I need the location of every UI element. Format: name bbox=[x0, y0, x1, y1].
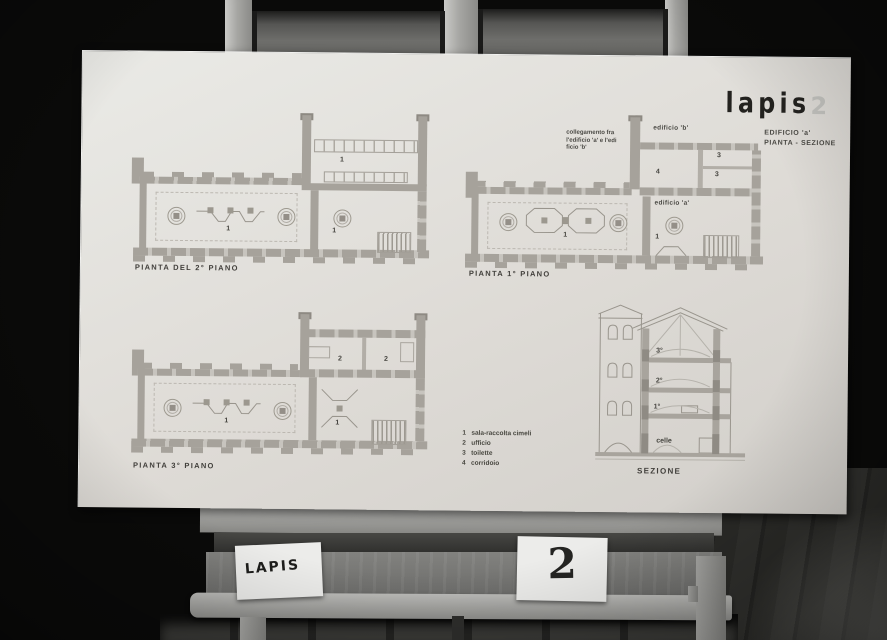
room-number-label: 2 bbox=[338, 355, 342, 362]
wall bbox=[308, 377, 317, 440]
room-number-label: 1 bbox=[563, 232, 567, 239]
wall bbox=[471, 187, 479, 262]
partition bbox=[703, 166, 758, 170]
room-number-label: 3 bbox=[715, 171, 719, 178]
wall bbox=[300, 369, 425, 378]
section-floor-label: 1° bbox=[654, 404, 661, 411]
desk-symbol bbox=[400, 342, 414, 362]
room-number-label: 1 bbox=[224, 417, 228, 424]
legend-item-number: 3 bbox=[462, 449, 471, 459]
sheet-number: 2 bbox=[810, 92, 827, 120]
wall bbox=[751, 150, 761, 256]
wall bbox=[137, 369, 145, 447]
presentation-board: lapis 2 EDIFICIO 'a' PIANTA - SEZIONE 1 bbox=[78, 50, 851, 514]
wall bbox=[472, 187, 632, 196]
wall bbox=[418, 116, 428, 186]
wall bbox=[310, 190, 319, 251]
staircase-symbol bbox=[703, 235, 739, 258]
legend-item: 1sala-raccolta cimeli bbox=[462, 429, 531, 440]
sheet-subtitle: EDIFICIO 'a' PIANTA - SEZIONE bbox=[764, 129, 836, 149]
room-number-label: 4 bbox=[656, 169, 660, 176]
legend: 1sala-raccolta cimeli 2ufficio 3toilette… bbox=[462, 429, 531, 470]
section-basement-label: celle bbox=[656, 438, 672, 445]
staircase-symbol bbox=[377, 232, 411, 253]
logo: lapis bbox=[725, 86, 810, 120]
plan-title-first-floor: PIANTA 1° PIANO bbox=[469, 269, 551, 279]
wall-collegamento bbox=[630, 117, 641, 189]
room-number-label: 1 bbox=[226, 225, 230, 232]
easel-leg-right bbox=[696, 556, 726, 640]
legend-item-label: toilette bbox=[471, 450, 492, 457]
section-drawing: 3° 2° 1° celle bbox=[595, 301, 747, 466]
floor-plan-1st-floor: collegamento fra l'edificio 'a' e l'edi … bbox=[459, 114, 760, 271]
legend-item-number: 1 bbox=[462, 429, 471, 439]
wall bbox=[302, 115, 312, 185]
legend-item-number: 4 bbox=[462, 459, 471, 469]
room-number-label: 2 bbox=[384, 356, 388, 363]
column-symbol bbox=[167, 207, 185, 225]
room-number-label: 1 bbox=[335, 419, 339, 426]
wall bbox=[140, 177, 304, 186]
photo-scene: lapis 2 EDIFICIO 'a' PIANTA - SEZIONE 1 bbox=[0, 0, 887, 640]
wall bbox=[640, 187, 758, 196]
partition bbox=[362, 338, 366, 371]
legend-item: 2ufficio bbox=[462, 439, 531, 450]
room-number-label: 1 bbox=[332, 227, 336, 234]
legend-item-label: corridoio bbox=[471, 460, 499, 467]
wall bbox=[417, 191, 427, 252]
card-lapis: LAPIS bbox=[235, 542, 323, 600]
easel-center-pole bbox=[452, 616, 464, 640]
wall bbox=[139, 177, 147, 256]
easel-leg-left bbox=[240, 617, 266, 640]
column-symbol bbox=[333, 209, 351, 227]
staircase-symbol bbox=[371, 420, 406, 445]
sheet-subtitle-line1: EDIFICIO 'a' bbox=[764, 129, 836, 139]
wall bbox=[416, 315, 426, 378]
card-number-label: 2 bbox=[517, 538, 608, 588]
legend-item-label: sala-raccolta cimeli bbox=[471, 430, 531, 438]
sheet-subtitle-line2: PIANTA - SEZIONE bbox=[764, 138, 836, 148]
column-symbol bbox=[499, 213, 517, 231]
section-title: SEZIONE bbox=[637, 466, 681, 475]
plan-title-second-floor: PIANTA DEL 2° PIANO bbox=[135, 263, 239, 273]
legend-item-number: 2 bbox=[462, 439, 471, 449]
wall bbox=[642, 196, 651, 255]
label-edificio-a: edificio 'a' bbox=[655, 200, 690, 207]
column-symbol bbox=[609, 214, 627, 232]
legend-item: 3toilette bbox=[462, 449, 531, 460]
floor-plan-3rd-floor: 2 2 1 1 bbox=[123, 307, 430, 460]
section-floor-label: 3° bbox=[656, 348, 663, 355]
card-number: 2 bbox=[516, 536, 607, 602]
easel-leg-peg bbox=[688, 586, 698, 602]
column-symbol bbox=[273, 402, 291, 420]
wall bbox=[138, 369, 302, 378]
floor-plan-2nd-floor: 1 1 1 bbox=[125, 105, 432, 260]
section-floor-label: 2° bbox=[656, 378, 663, 385]
card-lapis-label: LAPIS bbox=[244, 557, 300, 577]
room-number-label: 1 bbox=[340, 156, 344, 163]
shelf-symbol bbox=[314, 139, 418, 153]
legend-item: 4corridoio bbox=[462, 459, 531, 470]
bay-symbol bbox=[655, 245, 687, 257]
plan-title-third-floor: PIANTA 3° PIANO bbox=[133, 461, 215, 471]
display-case-symbol bbox=[195, 204, 265, 229]
label-edificio-b: edificio 'b' bbox=[653, 124, 688, 131]
shelf-symbol bbox=[324, 171, 408, 183]
wall bbox=[302, 183, 427, 191]
legend-item-label: ufficio bbox=[471, 440, 491, 447]
desk-symbol bbox=[308, 346, 330, 358]
column-symbol bbox=[665, 217, 683, 235]
room-number-label: 1 bbox=[655, 234, 659, 241]
column-symbol bbox=[277, 208, 295, 226]
column-symbol bbox=[163, 399, 181, 417]
room-number-label: 3 bbox=[717, 152, 721, 159]
wall bbox=[415, 378, 425, 441]
stair-funnel-symbol bbox=[317, 385, 361, 431]
